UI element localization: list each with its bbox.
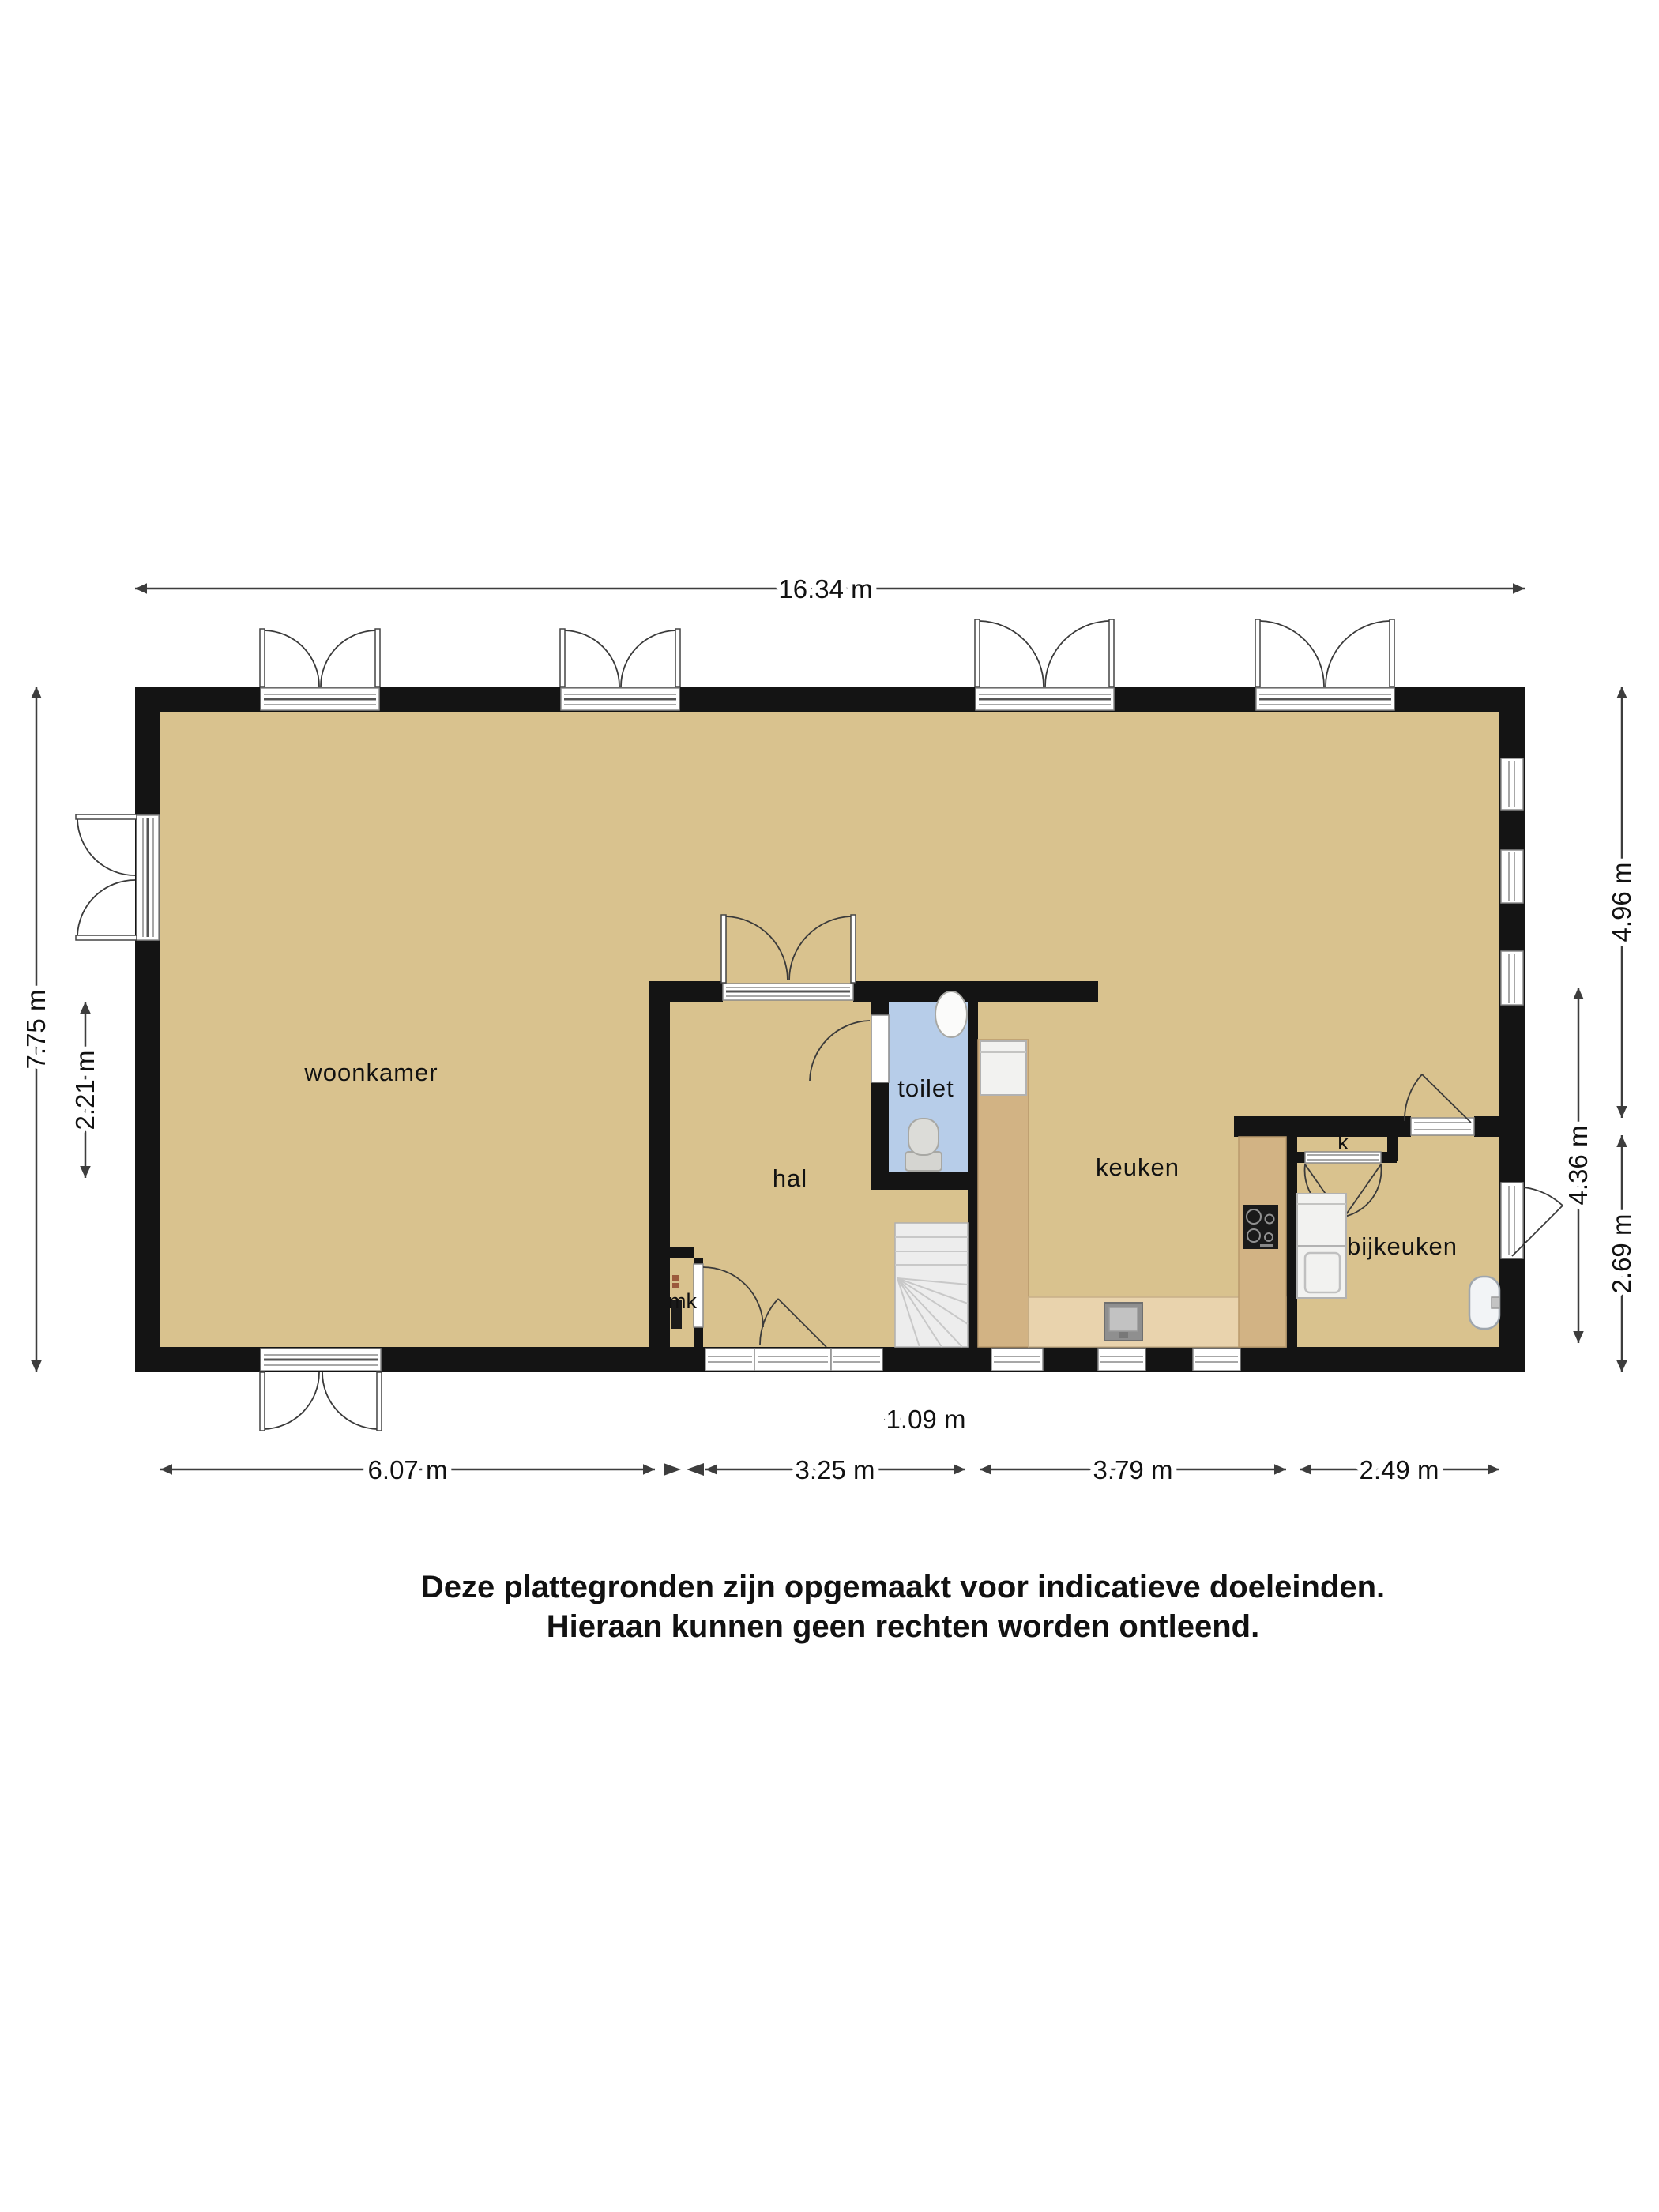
dim-label-bottom-hal: 3.25 m <box>796 1455 875 1484</box>
built-in-appliance <box>980 1041 1026 1095</box>
dim-right-middle: 4.36 m <box>1563 987 1593 1343</box>
north-french-door-1 <box>260 629 380 710</box>
dim-label-total-width: 16.34 m <box>778 574 872 604</box>
north-french-door-4 <box>1255 619 1394 710</box>
floorplan-drawing: woonkamer hal toilet keuken bijkeuken mk… <box>0 0 1659 2212</box>
cooktop <box>1243 1205 1278 1249</box>
disclaimer-line2: Hieraan kunnen geen rechten worden ontle… <box>547 1609 1259 1644</box>
south-window-2 <box>831 1349 882 1371</box>
dim-label-right-top: 4.96 m <box>1607 863 1636 942</box>
dim-bottom-hal: 3.25 m <box>705 1455 965 1484</box>
floorplan-page: woonkamer hal toilet keuken bijkeuken mk… <box>0 0 1659 2212</box>
dim-total-width: 16.34 m <box>135 574 1525 604</box>
door-leaf <box>560 629 565 687</box>
north-french-door-2 <box>560 629 680 710</box>
mk-symbol <box>672 1275 679 1281</box>
dim-bottom-woonkamer: 6.07 m <box>160 1455 655 1484</box>
bijkeuken-west-wall <box>1286 1137 1297 1347</box>
door-leaf <box>975 619 980 687</box>
door-leaf <box>260 629 265 687</box>
mk-north-wall <box>649 1247 694 1258</box>
door-leaf <box>375 629 380 687</box>
dim-label-stair-width: 1.09 m <box>886 1405 966 1434</box>
door-leaf <box>76 935 137 940</box>
door-leaf <box>851 915 856 983</box>
kitchen-sink <box>1104 1303 1142 1341</box>
door-leaf <box>377 1372 382 1431</box>
dim-bottom-short-segment <box>664 1463 704 1476</box>
toilet-door <box>871 1015 889 1082</box>
hal-north-wall-left <box>649 981 723 1002</box>
staircase <box>895 1223 968 1347</box>
room-label-bijkeuken: bijkeuken <box>1347 1232 1458 1260</box>
mk-east-wall-top <box>694 1258 703 1264</box>
room-label-hal: hal <box>773 1164 807 1192</box>
door-leaf <box>1390 619 1394 687</box>
door-leaf <box>76 814 137 819</box>
dim-label-bottom-woonkamer: 6.07 m <box>368 1455 448 1484</box>
east-window-3 <box>1501 951 1523 1005</box>
east-window-1 <box>1501 758 1523 810</box>
door-leaf <box>721 915 726 983</box>
dim-right-bottom: 2.69 m <box>1607 1135 1636 1372</box>
dim-right-top: 4.96 m <box>1607 687 1636 1118</box>
room-label-mk: mk <box>668 1289 697 1313</box>
hal-west-wall <box>649 981 670 1347</box>
wall-west <box>135 687 160 1372</box>
laundry-appliances <box>1297 1194 1346 1298</box>
room-label-keuken: keuken <box>1096 1153 1179 1181</box>
south-window-5 <box>1193 1349 1240 1371</box>
dim-label-right-bottom: 2.69 m <box>1607 1214 1636 1294</box>
dim-stair-width: 1.09 m <box>884 1405 969 1434</box>
room-label-toilet: toilet <box>897 1074 954 1102</box>
dim-label-total-height: 7.75 m <box>21 990 51 1070</box>
dim-label-bottom-bijkeuken: 2.49 m <box>1360 1455 1439 1484</box>
east-exterior-door <box>1501 1183 1563 1258</box>
room-label-k: k <box>1337 1130 1349 1154</box>
divider-wall-east <box>1474 1116 1499 1137</box>
door-leaf <box>1255 619 1260 687</box>
south-window-3 <box>991 1349 1043 1371</box>
door-leaf <box>1109 619 1114 687</box>
bijkeuken-sink <box>1469 1277 1499 1329</box>
door-leaf <box>260 1372 265 1431</box>
dim-label-bottom-keuken: 3.79 m <box>1093 1455 1173 1484</box>
south-window-1 <box>705 1349 754 1371</box>
disclaimer-line1: Deze plattegronden zijn opgemaakt voor i… <box>421 1570 1385 1604</box>
mk-symbol <box>672 1283 679 1288</box>
washer <box>1297 1194 1346 1246</box>
toilet-south-wall <box>871 1172 978 1190</box>
dim-total-height: 7.75 m <box>21 687 51 1372</box>
toilet-east-wall <box>968 981 978 1347</box>
dim-bottom-bijkeuken: 2.49 m <box>1300 1455 1499 1484</box>
north-french-door-3 <box>975 619 1114 710</box>
door-leaf <box>675 629 680 687</box>
toilet-west-wall-top <box>871 1002 889 1015</box>
divider-wall-west <box>1234 1116 1411 1137</box>
dim-left-partial: 2.21 m <box>70 1002 100 1178</box>
mk-east-wall-bottom <box>694 1327 703 1347</box>
south-french-door <box>260 1349 382 1431</box>
dim-label-right-middle: 4.36 m <box>1563 1126 1593 1206</box>
toilet-bowl <box>908 1119 939 1155</box>
toilet-sink <box>935 991 967 1037</box>
south-window-4 <box>1098 1349 1145 1371</box>
room-label-woonkamer: woonkamer <box>303 1059 438 1086</box>
dim-bottom-keuken: 3.79 m <box>980 1455 1286 1484</box>
west-double-door <box>76 814 159 940</box>
east-window-2 <box>1501 850 1523 903</box>
dim-label-left-partial: 2.21 m <box>70 1051 100 1130</box>
